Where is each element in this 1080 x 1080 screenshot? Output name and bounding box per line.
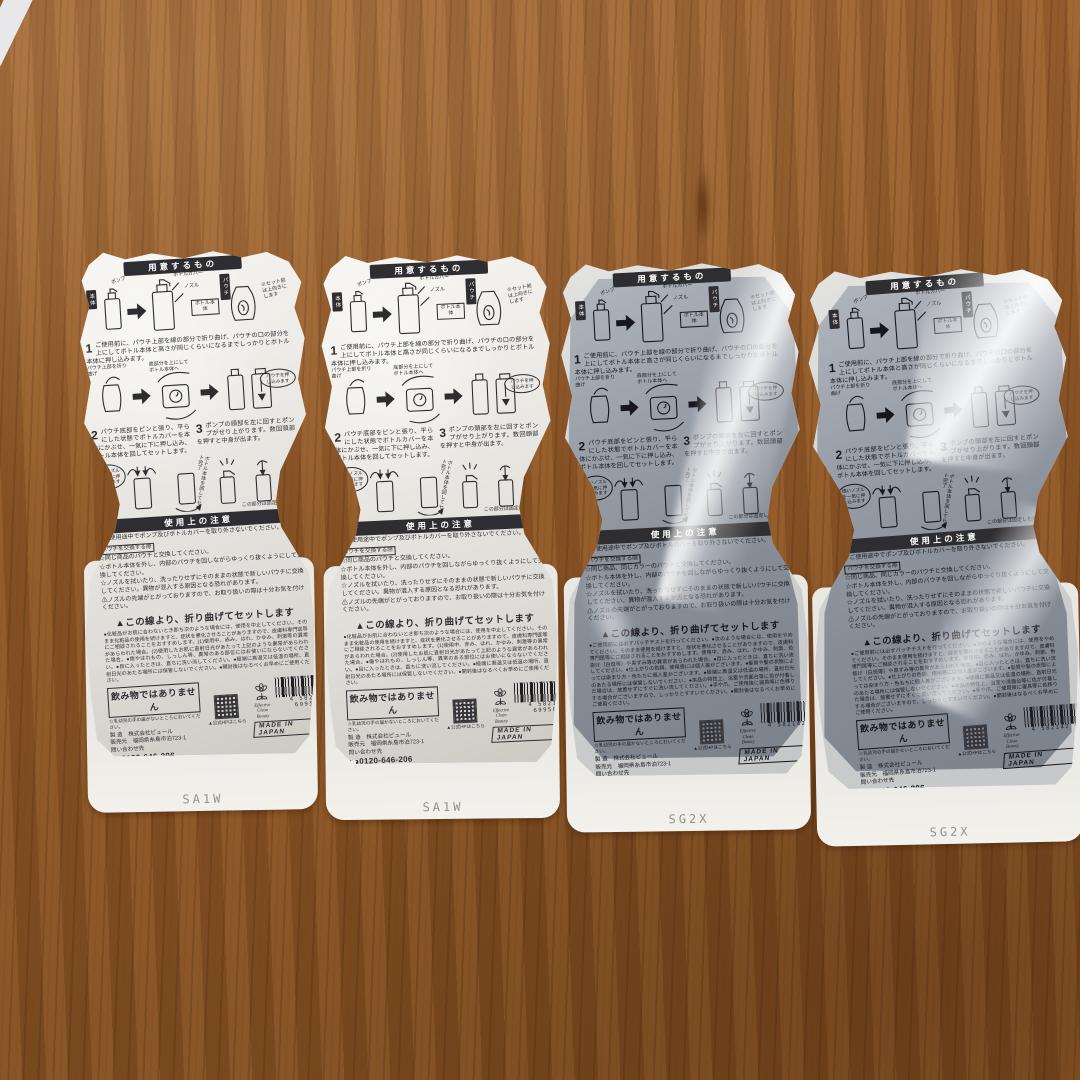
step-3-number: 3 (940, 441, 948, 453)
hp-link-note: ▲公式HPはこちら (444, 723, 488, 731)
fine-print: ●ご使用前には必ずパッチテストを行ってください。●次のような場合には、使用をやめ… (851, 636, 1059, 718)
left-info-column: 飲み物ではありません ☆乳幼児の手の届かないところにおいてください。 製 造 株… (346, 686, 441, 767)
qr-code (214, 694, 239, 719)
qr-code (963, 724, 989, 750)
step-2-number: 2 (578, 440, 585, 452)
hold-note: この部分は固定したまま (242, 499, 298, 508)
bottom-info: 飲み物ではありません ☆乳幼児の手の届かないところにおいてください。 製 造 株… (107, 675, 315, 764)
printed-label: 用意するもの (822, 269, 1065, 797)
step-2-text: 2 パウチ底部をピンと張り、平らにした状態でボトルカバーを本体にかぶせ、一気に下… (578, 435, 679, 472)
bottom-up-note: 底部分を上にしてボトル本体へ (393, 364, 437, 377)
refill-pouch: SA1W 用意するもの (71, 246, 324, 786)
bottom-info: 飲み物ではありません ☆乳幼児の手の届かないところにおいてください。 製 造 株… (346, 681, 553, 767)
caution-list: ☆ご使用途中でポンプ及びボトルカバーを取り外さないでください。 パウチを交換する… (339, 530, 546, 616)
barcode-block: 4 582142 69 (1023, 702, 1080, 733)
flower-logo-icon (1000, 712, 1021, 733)
diagram-insert: パウチ上部を折り曲げ 底部分を上にしてボトル本体へ パウチを押し込みます (331, 360, 538, 431)
refill-pouch: SG2X 用意するもの (798, 263, 1080, 819)
brand-name: Effective Clean Beauty (491, 707, 512, 724)
step-3-number: 3 (439, 427, 446, 439)
diagram-insert: パウチ上部を折り曲げ 底部分を上にしてボトル本体へ パウチを押し込みます (87, 354, 294, 429)
diagram-set: 細いノズルを一気に押し込みます ボトル本体を回してセット完了 この部分は固定した… (580, 462, 787, 529)
lot-code: SG2X (567, 810, 811, 827)
caution-list: ☆ご使用途中でポンプ及びボトルカバーを取り外さないでください。 パウチを交換する… (97, 524, 305, 613)
hold-note: この部分は固定したまま (484, 505, 540, 513)
pouch-tag: パウチ (708, 286, 719, 312)
lot-code: SG2X (817, 822, 1080, 842)
brand-logo: Effective Clean Beauty (737, 708, 759, 745)
body-tag: 本体 (86, 290, 97, 310)
hp-link-note: ▲公式HPはこちら (955, 749, 999, 758)
caution-list: ☆ご使用途中でポンプ及びボトルカバーを取り外さないでください。 パウチを交換する… (843, 541, 1052, 633)
step-2-number: 2 (835, 449, 843, 461)
qr-column: ▲公式HPはこちら (203, 679, 252, 758)
step-2-number: 2 (91, 429, 98, 441)
diagram-set: 細いノズルを一気に押し込みます ボトル本体を回してセット完了 この部分は固定した… (93, 449, 300, 518)
nozzle-label: ノズル (673, 296, 688, 303)
step-3-text: 3 ポンプの頭部を左に回すとポンプがせり上がります。数回頭部を押すと中身が出ます… (683, 430, 784, 467)
diagram-items: 本体 ポンプ ボトルカバー ノズル ボトル本体 パウチ ※セット前は上向きにしま… (570, 281, 777, 354)
not-a-drink-box: 飲み物ではありません (592, 707, 685, 742)
caution-list: ☆ご使用途中でポンプ及びボトルカバーを取り外さないでください。 パウチを交換する… (584, 537, 792, 624)
diagram-set: 細いノズルを一気に押し込みます ボトル本体を回してセット完了 この部分は固定した… (336, 455, 542, 520)
table-edge-highlight (0, 0, 33, 66)
left-info-column: 飲み物ではありません ☆乳幼児の手の届かないところにおいてください。 製 造 株… (107, 682, 204, 764)
bottle-body-label: ボトル本体 (436, 303, 465, 320)
step-2-number: 2 (334, 432, 341, 444)
step-3-text: 3 ポンプの頭部を左に回すとポンプがせり上がります。数回頭部を押すと中身が出ます… (439, 423, 539, 460)
step-2-text: 2 パウチ底部をピンと張り、平らにした状態でボトルカバーを本体にかぶせ、一気に下… (334, 427, 434, 464)
diagram-items: 本体 ポンプ ボトルカバー ノズル ボトル本体 パウチ ※セット前は上向きにしま… (81, 268, 288, 343)
printed-label: 用意するもの (327, 258, 553, 767)
brand-name: Effective Clean Beauty (738, 728, 759, 746)
not-a-drink-box: 飲み物ではありません (346, 686, 439, 720)
diagram-insert: パウチ上部を折り曲げ 底部分を上にしてボトル本体へ パウチを押し込みます (575, 367, 782, 440)
lot-code: SA1W (88, 790, 318, 808)
refill-pouch: SA1W 用意するもの (313, 251, 567, 794)
pouch-tag: パウチ (961, 291, 973, 317)
brand-name: Effective Clean Beauty (252, 702, 273, 720)
flower-logo-icon (251, 682, 272, 703)
fold-note: パウチ上部を折り曲げ (575, 376, 616, 390)
qr-column: ▲公式HPはこちら (688, 705, 736, 784)
bottle-body-label: ボトル本体 (191, 298, 220, 315)
pouch-tag: パウチ (465, 278, 476, 304)
hp-link-note: ▲公式HPはこちら (205, 718, 249, 727)
pouch-body: 用意するもの (313, 251, 566, 768)
step-1-number: 1 (330, 345, 337, 357)
brand-logo: Effective Clean Beauty (490, 687, 512, 724)
hp-link-note: ▲公式HPはこちら (690, 744, 734, 752)
printed-label: 用意するもの (80, 252, 315, 764)
qr-code (452, 698, 477, 723)
hold-note: この部分は固定したまま (728, 512, 784, 521)
made-in-japan: MADE IN JAPAN (1003, 747, 1075, 769)
brand-logo: Effective Clean Beauty (251, 682, 273, 720)
not-a-drink-box: 飲み物ではありません (107, 682, 201, 718)
qr-code (699, 719, 724, 744)
nozzle-label: ノズル (184, 284, 199, 291)
lot-code: SA1W (326, 799, 560, 815)
flower-logo-icon (490, 687, 511, 708)
step-3-number: 3 (683, 435, 690, 447)
fine-print: ●化粧品がお肌に合わないとき即ち次のような場合には、使用を中止してください。その… (343, 625, 549, 687)
step-3-number: 3 (196, 423, 203, 435)
body-tag: 本体 (575, 301, 586, 320)
bottom-up-note: 底部分を上にしてボトル本体へ (637, 372, 682, 386)
printed-label: 用意するもの (570, 265, 801, 789)
fine-print: ●化粧品がお肌に合わないとき即ち次のような場合には、使用を中止してください。その… (103, 619, 310, 685)
pouch-tag: パウチ (219, 274, 231, 300)
nozzle-label: ノズル (430, 288, 445, 294)
pouch-body: 用意するもの (798, 263, 1080, 793)
left-info-column: 飲み物ではありません ☆乳幼児の手の届かないところにおいてください。 製 造 株… (856, 713, 954, 796)
bottle-body-label: ボトル本体 (680, 311, 709, 328)
flower-logo-icon (737, 708, 758, 729)
step-1-number: 1 (828, 362, 836, 374)
bottom-info: 飲み物ではありません ☆乳幼児の手の届かないところにおいてください。 製 造 株… (856, 705, 1065, 797)
diagram-items: 本体 ポンプ ボトルカバー ノズル ボトル本体 パウチ ※セット前は上向きにしま… (327, 274, 534, 345)
fine-print: ●ご使用前には必ずパッチテストを行ってください。●次のような場合には、使用をやめ… (589, 632, 796, 709)
wood-grain-knot (690, 150, 716, 260)
body-tag: 本体 (828, 309, 839, 329)
body-tag: 本体 (332, 292, 343, 311)
qr-column: ▲公式HPはこちら (952, 710, 1002, 790)
brand-name: Effective Clean Beauty (1001, 732, 1022, 750)
refill-pouch: SG2X 用意するもの (552, 258, 818, 806)
step-1-number: 1 (85, 342, 92, 354)
pouch-body: 用意するもの (71, 246, 324, 760)
step-1-number: 1 (574, 353, 581, 365)
nozzle-label: ノズル (926, 302, 941, 309)
qr-column: ▲公式HPはこちら (442, 684, 489, 763)
brand-and-barcode: Effective Clean Beauty 4 582142 69 (1000, 702, 1080, 749)
bottle-body-label: ボトル本体 (933, 316, 962, 334)
fold-note: パウチ上部を折り曲げ (331, 367, 371, 380)
brand-logo: Effective Clean Beauty (1000, 712, 1023, 750)
pouch-body: 用意するもの (552, 258, 817, 780)
